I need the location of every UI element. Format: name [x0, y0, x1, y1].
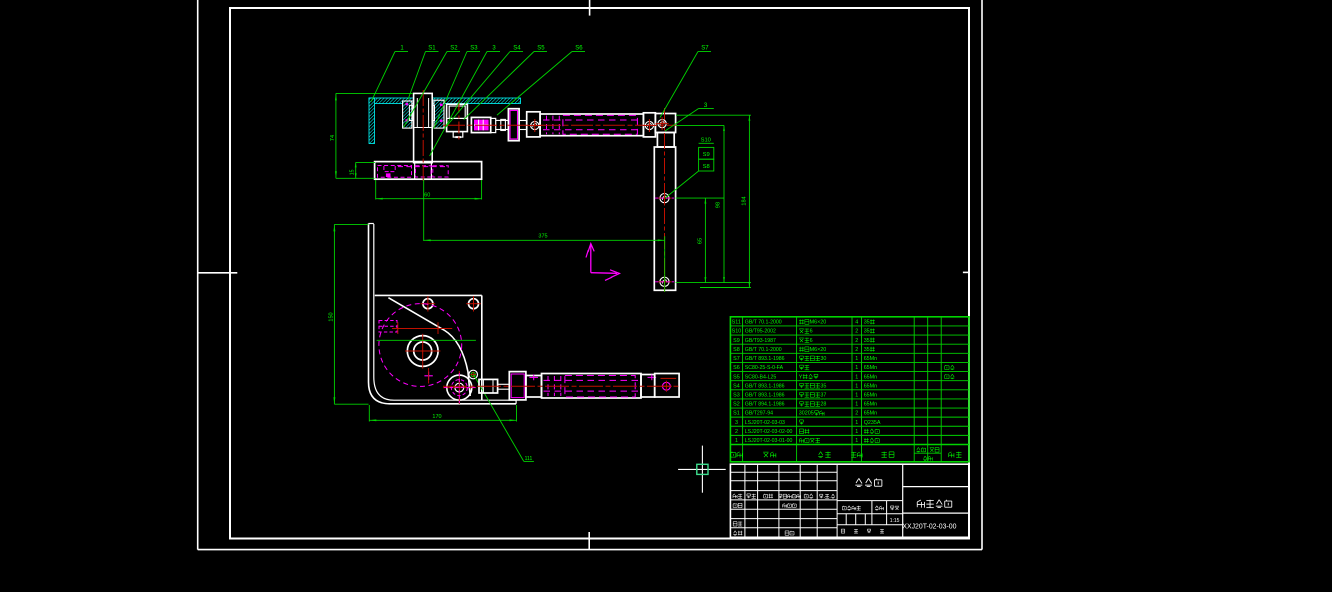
svg-text:65: 65: [698, 238, 704, 244]
svg-text:3: 3: [704, 102, 708, 109]
svg-text:GB/T 894.1-1986: GB/T 894.1-1986: [745, 402, 785, 408]
svg-text:LSJ20T-02-03-02-00: LSJ20T-02-03-02-00: [745, 429, 793, 435]
svg-text:S4: S4: [733, 383, 740, 389]
svg-text:S1: S1: [733, 411, 740, 417]
svg-text:1: 1: [855, 402, 858, 408]
svg-text:6: 6: [810, 329, 813, 335]
svg-text:S6: S6: [575, 46, 583, 52]
svg-text:,: ,: [824, 494, 825, 499]
svg-text:37: 37: [820, 392, 826, 398]
svg-text:170: 170: [432, 414, 441, 420]
svg-text:65Mn: 65Mn: [864, 356, 878, 362]
svg-text:1: 1: [855, 392, 858, 398]
svg-text:2: 2: [735, 429, 738, 435]
svg-text:S7: S7: [701, 46, 709, 52]
svg-text:GB/T 893.1-1986: GB/T 893.1-1986: [745, 392, 785, 398]
svg-text:,: ,: [829, 494, 830, 499]
svg-text:S6: S6: [733, 365, 740, 371]
svg-text:SC80-B4-L25: SC80-B4-L25: [745, 374, 777, 380]
svg-text:S7: S7: [733, 356, 740, 362]
svg-text:35: 35: [864, 320, 870, 326]
svg-text:S8: S8: [733, 347, 740, 353]
svg-text:S9: S9: [733, 338, 740, 344]
svg-text:S2: S2: [450, 46, 458, 52]
svg-text:S3: S3: [470, 46, 478, 52]
svg-text:1:15: 1:15: [890, 518, 900, 524]
svg-text:35: 35: [864, 347, 870, 353]
svg-text:65Mn: 65Mn: [864, 374, 878, 380]
svg-text:S10: S10: [732, 329, 742, 335]
svg-text:S10: S10: [701, 137, 711, 143]
svg-text:Y: Y: [799, 374, 803, 380]
svg-text:3: 3: [735, 420, 738, 426]
svg-text:M6×20: M6×20: [810, 320, 827, 326]
svg-text:GB/T 893.1-1986: GB/T 893.1-1986: [745, 383, 785, 389]
svg-text:28: 28: [820, 402, 826, 408]
svg-text:GB/T 70.1-2000: GB/T 70.1-2000: [745, 320, 782, 326]
svg-text:74: 74: [330, 135, 336, 141]
svg-text:65Mn: 65Mn: [864, 383, 878, 389]
svg-text:111: 111: [525, 456, 533, 462]
svg-text:184: 184: [742, 196, 748, 205]
svg-text:2: 2: [855, 347, 858, 353]
svg-text:S2: S2: [733, 402, 740, 408]
svg-text:4: 4: [855, 320, 858, 326]
svg-text:2: 2: [855, 338, 858, 344]
svg-text:GB/T95-2002: GB/T95-2002: [745, 329, 776, 335]
svg-text:S1: S1: [428, 46, 436, 52]
svg-text:65Mn: 65Mn: [864, 365, 878, 371]
svg-text:98: 98: [716, 202, 722, 208]
svg-text:35: 35: [864, 329, 870, 335]
svg-text:2: 2: [855, 329, 858, 335]
svg-text:65Mn: 65Mn: [864, 411, 878, 417]
svg-text:1: 1: [855, 383, 858, 389]
svg-text:S4: S4: [513, 46, 521, 52]
svg-text:Q235A: Q235A: [864, 420, 881, 426]
svg-text:65Mn: 65Mn: [864, 392, 878, 398]
svg-text:S11: S11: [732, 320, 741, 326]
svg-text:1: 1: [735, 438, 738, 444]
svg-text:35: 35: [864, 338, 870, 344]
svg-text:GB/T297-94: GB/T297-94: [745, 411, 773, 417]
svg-text:65Mn: 65Mn: [864, 402, 878, 408]
svg-text:1: 1: [855, 420, 858, 426]
svg-text:30: 30: [820, 356, 826, 362]
svg-text:GB/T 70.1-2000: GB/T 70.1-2000: [745, 347, 782, 353]
svg-text:30205: 30205: [799, 411, 814, 417]
svg-text:6: 6: [810, 338, 813, 344]
svg-text:S5: S5: [537, 46, 545, 52]
svg-text:2: 2: [855, 411, 858, 417]
svg-text:S5: S5: [733, 374, 740, 380]
svg-text:S3: S3: [733, 392, 740, 398]
svg-text:GB/T 893.1-1986: GB/T 893.1-1986: [745, 356, 785, 362]
svg-text:S9: S9: [703, 152, 710, 158]
svg-text:M6×20: M6×20: [810, 347, 827, 353]
svg-text:S8: S8: [703, 164, 710, 170]
svg-text:GB/T93-1987: GB/T93-1987: [745, 338, 776, 344]
svg-text:SC80-25-S-0-FA: SC80-25-S-0-FA: [745, 365, 784, 371]
svg-text:XXJ20T-02-03-00: XXJ20T-02-03-00: [902, 524, 956, 531]
svg-text:1: 1: [855, 429, 858, 435]
svg-text:15: 15: [350, 169, 356, 175]
svg-text:LSJ20T-02-03-03: LSJ20T-02-03-03: [745, 420, 785, 426]
svg-text:LSJ20T-02-03-01-00: LSJ20T-02-03-01-00: [745, 438, 793, 444]
svg-text:150: 150: [328, 312, 334, 321]
svg-text:1: 1: [855, 374, 858, 380]
svg-text:1: 1: [855, 356, 858, 362]
svg-text:1: 1: [855, 438, 858, 444]
svg-text:60: 60: [424, 192, 430, 198]
svg-text:375: 375: [538, 234, 547, 240]
svg-text:1: 1: [855, 365, 858, 371]
svg-text:35: 35: [820, 383, 826, 389]
